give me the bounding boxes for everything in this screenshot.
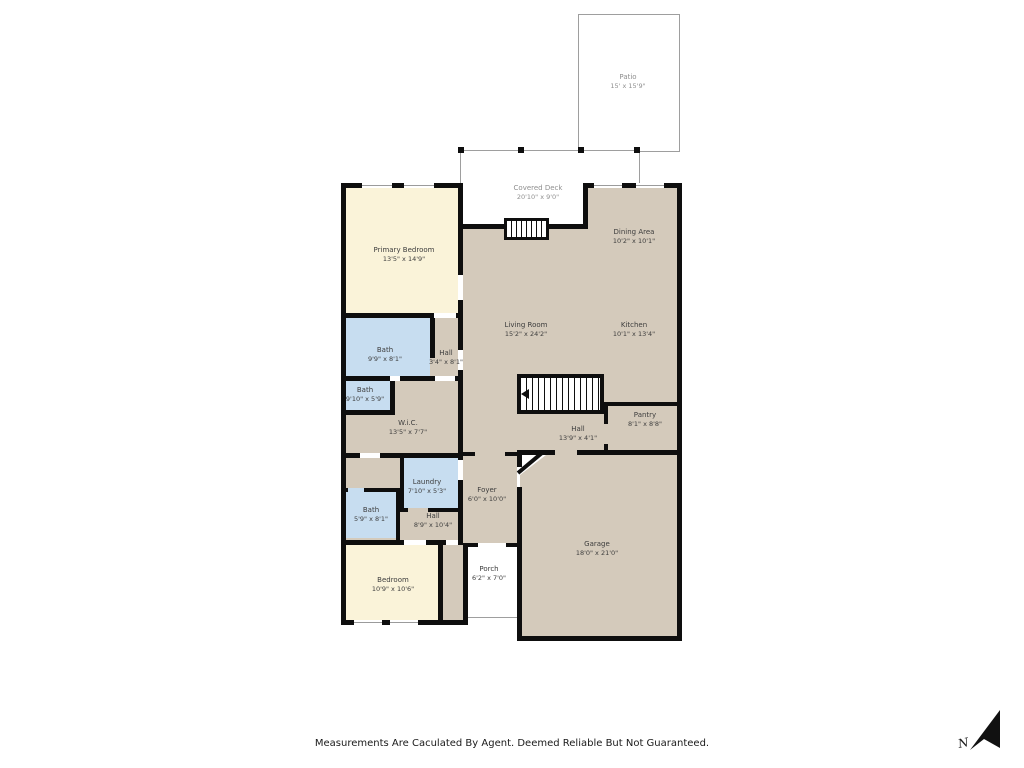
deck-edge-top: [460, 150, 640, 151]
wall-segment: [428, 508, 463, 512]
wall-segment: [341, 376, 390, 381]
wall-segment: [341, 183, 346, 625]
room-fill-bedroom-closet: [443, 545, 463, 620]
wall-segment: [604, 402, 608, 424]
deck-edge-right: [639, 150, 640, 183]
wall-segment: [390, 381, 395, 410]
room-fill-primary-bedroom: [346, 188, 458, 313]
wall-segment: [341, 313, 434, 318]
wall-segment: [396, 488, 400, 540]
window: [390, 620, 418, 625]
wall-segment: [458, 224, 504, 229]
wall-segment: [517, 487, 522, 636]
wall-segment: [430, 318, 435, 358]
wall-segment: [583, 183, 588, 229]
room-fill-bath-upper: [346, 318, 430, 376]
deck-post: [458, 147, 464, 153]
window: [594, 183, 622, 188]
wall-segment: [604, 444, 608, 450]
deck-steps: [504, 218, 549, 240]
room-fill-dining-kitchen: [583, 188, 677, 455]
room-fill-laundry: [400, 458, 458, 508]
floor-plan: Patio 15' x 15'9" Covered Deck 20'10" x …: [0, 0, 1024, 768]
wall-segment: [463, 545, 468, 620]
wall-segment: [341, 540, 404, 545]
room-fill-foyer: [463, 455, 517, 543]
wall-segment: [458, 300, 463, 350]
north-label: N: [957, 735, 970, 751]
wall-segment: [505, 452, 517, 456]
window: [404, 183, 434, 188]
wall-segment: [517, 636, 682, 641]
wall-segment: [604, 402, 682, 406]
wall-segment: [506, 543, 517, 547]
deck-post: [518, 147, 524, 153]
room-fill-covered-deck: [460, 150, 640, 183]
wall-segment: [463, 543, 478, 547]
room-fill-porch: [466, 547, 517, 618]
wall-segment: [400, 458, 404, 508]
wall-segment: [517, 450, 555, 455]
room-fill-bath-lower: [346, 488, 396, 538]
disclaimer-text: Measurements Are Caculated By Agent. Dee…: [0, 738, 1024, 749]
wall-segment: [517, 455, 522, 467]
wall-segment: [458, 370, 463, 460]
wall-segment: [341, 453, 360, 458]
deck-edge-left: [460, 150, 461, 183]
room-fill-garage: [520, 455, 677, 636]
wall-segment: [341, 183, 463, 188]
room-fill-patio: [578, 14, 680, 152]
wall-segment: [426, 540, 446, 545]
room-fill-bath-mid: [346, 381, 390, 410]
deck-post: [578, 147, 584, 153]
wall-segment: [341, 488, 348, 492]
room-fill-bedroom: [346, 545, 438, 620]
window: [354, 620, 382, 625]
wall-segment: [438, 545, 443, 620]
deck-post: [634, 147, 640, 153]
north-arrow-icon: [964, 708, 1004, 752]
wall-segment: [455, 376, 463, 381]
compass: N: [952, 702, 1012, 762]
wall-segment: [458, 480, 463, 545]
wall-segment: [400, 376, 435, 381]
wall-segment: [458, 183, 463, 275]
wall-segment: [677, 183, 682, 641]
room-fill-living-room: [463, 228, 583, 455]
wall-segment: [400, 508, 408, 512]
wall-segment: [456, 313, 463, 318]
window: [636, 183, 664, 188]
wall-segment: [463, 452, 475, 456]
wall-segment: [380, 453, 463, 458]
wall-segment: [577, 450, 682, 455]
window: [362, 183, 392, 188]
wall-segment: [341, 410, 395, 415]
stairs-direction-arrow: [521, 389, 529, 399]
stairs: [517, 374, 604, 414]
wall-segment: [364, 488, 400, 492]
